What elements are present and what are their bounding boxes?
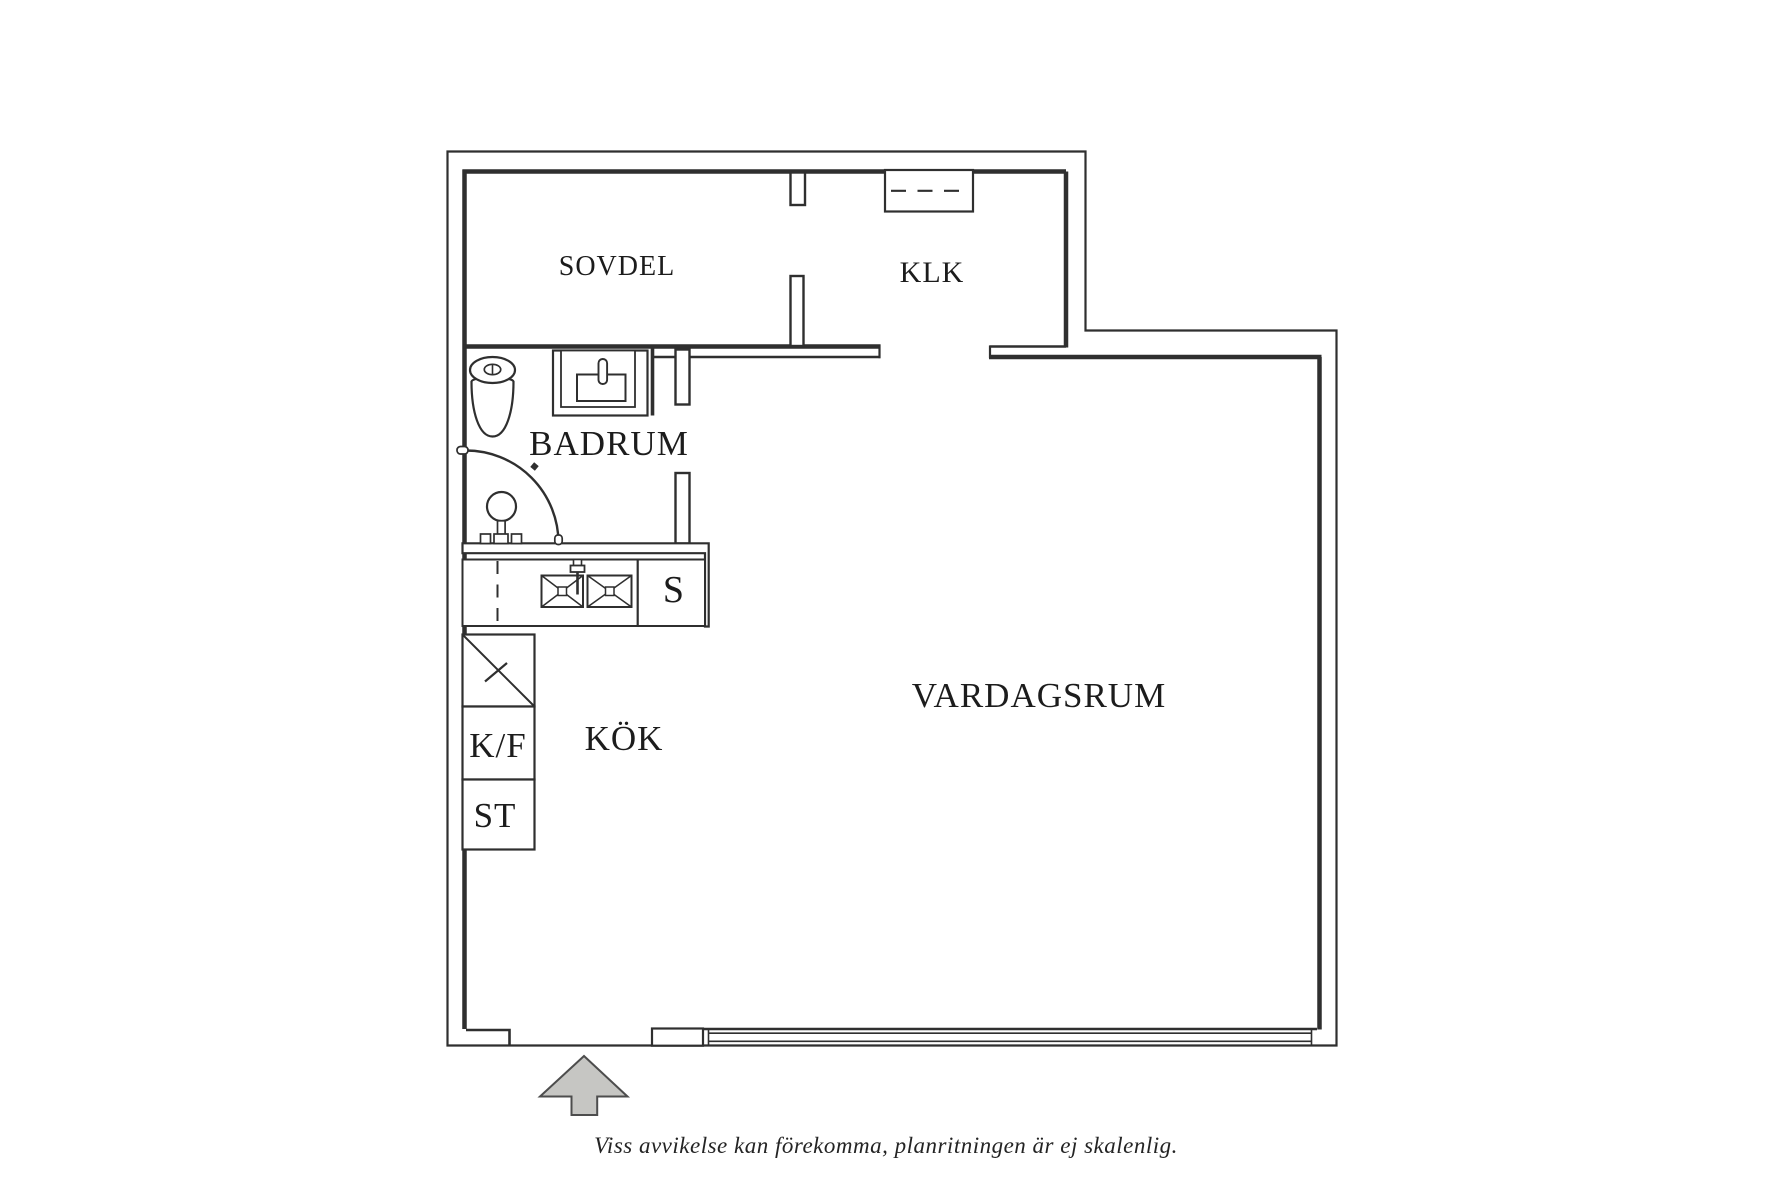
cabinet-label-s: S [663, 569, 685, 611]
bathroom-sink-icon [553, 351, 648, 416]
toilet-icon [470, 357, 515, 437]
cabinet-label-kf: K/F [469, 726, 526, 765]
room-label-sovdel: SOVDEL [559, 251, 675, 282]
floor-plan-canvas: SOVDEL KLK BADRUM KÖK VARDAGSRUM K/F ST … [0, 0, 1780, 1187]
room-label-vardagsrum: VARDAGSRUM [912, 676, 1166, 715]
entrance-arrow-icon [540, 1056, 628, 1115]
cabinet-label-st: ST [474, 796, 517, 835]
wardrobe-dashed-icon [885, 170, 973, 212]
floor-plan: SOVDEL KLK BADRUM KÖK VARDAGSRUM K/F ST … [0, 0, 1780, 1187]
entrance-and-window [652, 1029, 1317, 1046]
room-label-badrum: BADRUM [529, 424, 689, 463]
sovdel-klk-stub-upper [791, 173, 806, 206]
room-label-klk: KLK [900, 256, 965, 289]
sovdel-klk-stub-lower [791, 276, 804, 346]
door-panel [652, 1029, 703, 1046]
window-band [704, 1029, 1317, 1046]
shower-mixer [487, 492, 516, 521]
tall-cabinet-diagonal [463, 635, 535, 707]
bathroom-faucet-icon [599, 359, 608, 384]
badrum-right-wall-upper [676, 350, 690, 405]
entrance-left-jamb [466, 1030, 510, 1045]
disclaimer-text: Viss avvikelse kan förekomma, planritnin… [594, 1133, 1178, 1158]
room-label-kok: KÖK [585, 719, 664, 758]
badrum-right-wall-lower [676, 473, 690, 544]
